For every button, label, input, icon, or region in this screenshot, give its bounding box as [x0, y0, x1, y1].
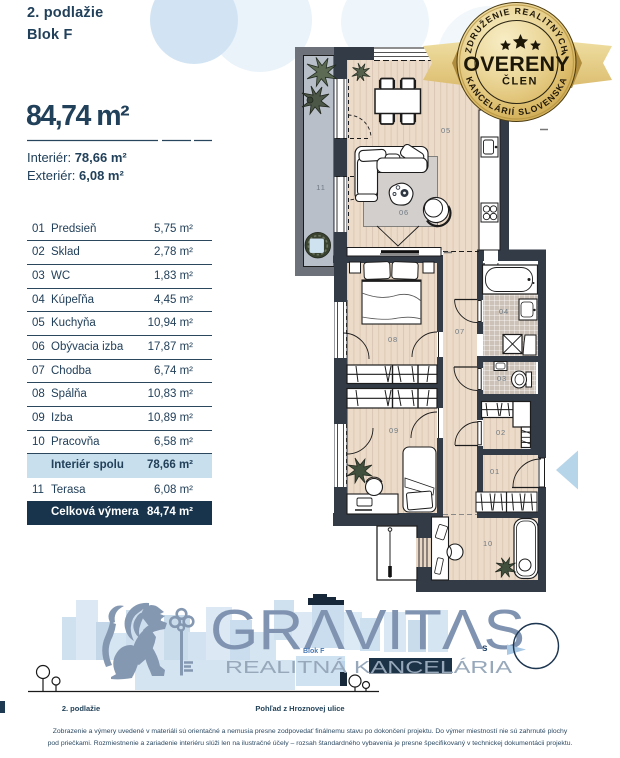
svg-text:REALITNÁ KANCELÁRIA: REALITNÁ KANCELÁRIA [225, 657, 512, 677]
svg-text:Pohľad z Hroznovej ulice: Pohľad z Hroznovej ulice [255, 704, 344, 713]
svg-text:GRΛVITΛS: GRΛVITΛS [210, 598, 525, 662]
svg-text:03: 03 [497, 374, 507, 383]
svg-text:Blok F: Blok F [303, 648, 325, 655]
svg-text:02: 02 [496, 428, 506, 437]
svg-text:OVERENÝ: OVERENÝ [463, 51, 570, 76]
svg-text:10: 10 [483, 539, 493, 548]
svg-text:2. podlažie: 2. podlažie [62, 704, 100, 713]
svg-text:11: 11 [316, 183, 325, 192]
svg-text:08: 08 [388, 335, 398, 344]
svg-text:ČLEN: ČLEN [502, 75, 538, 88]
svg-text:04: 04 [499, 307, 509, 316]
svg-text:07: 07 [455, 327, 465, 336]
svg-text:06: 06 [399, 208, 409, 217]
svg-text:09: 09 [389, 426, 399, 435]
svg-text:s: s [482, 643, 488, 654]
svg-text:01: 01 [490, 467, 500, 476]
